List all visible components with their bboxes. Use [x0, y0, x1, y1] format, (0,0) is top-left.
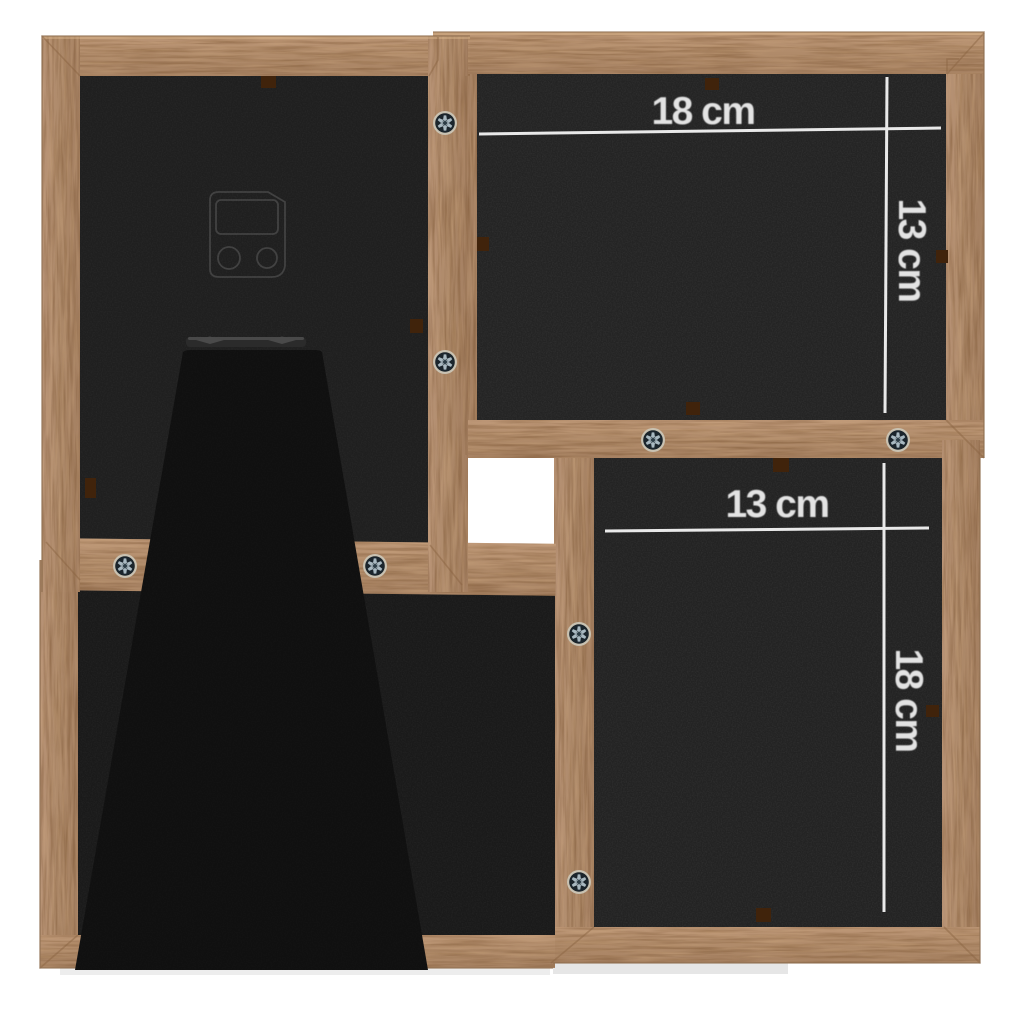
- svg-text:18 cm: 18 cm: [651, 90, 754, 133]
- svg-text:13 cm: 13 cm: [890, 198, 933, 301]
- svg-text:13 cm: 13 cm: [725, 483, 828, 526]
- svg-text:18 cm: 18 cm: [887, 648, 930, 751]
